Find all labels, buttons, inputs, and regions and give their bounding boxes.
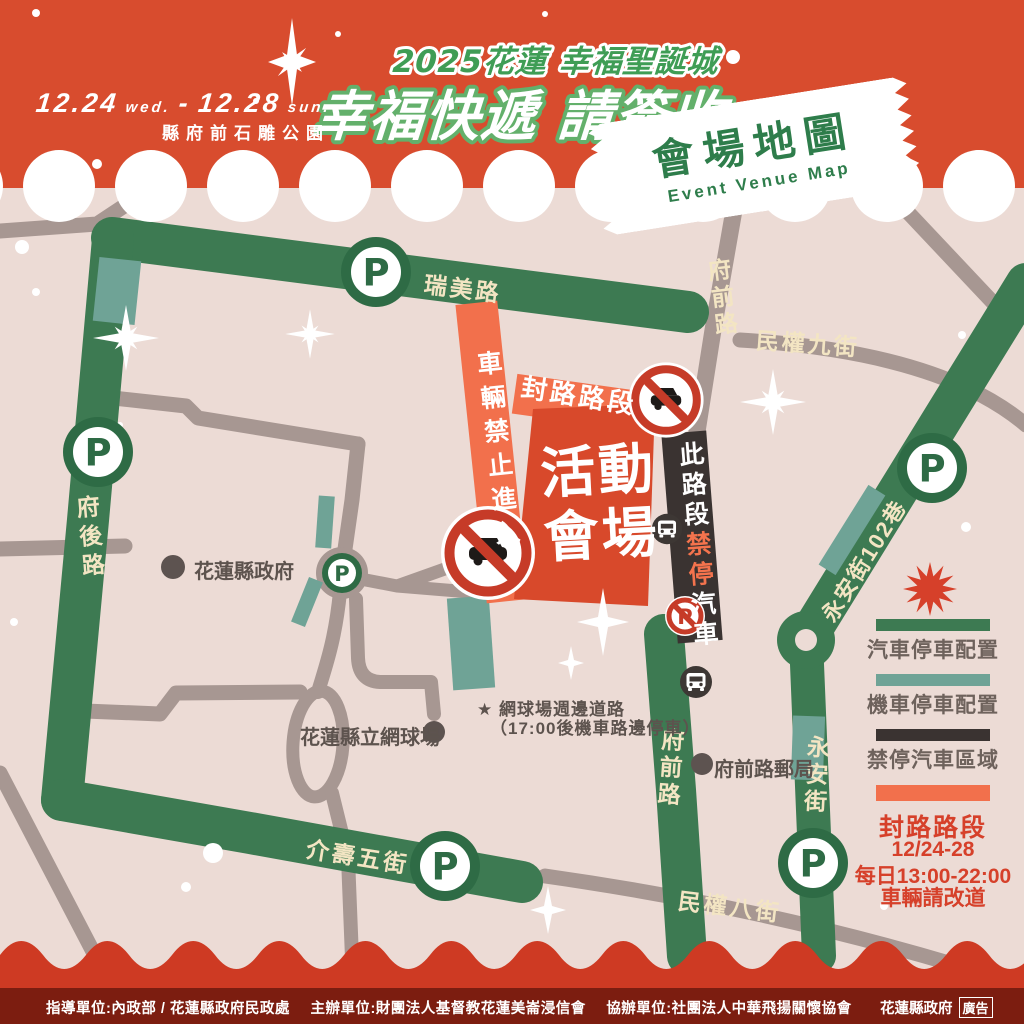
venue-line1: 活動 bbox=[518, 436, 679, 508]
date-separator: - bbox=[177, 88, 192, 118]
credit-coorganizer: 協辦單位:社團法人中華飛揚關懷協會 bbox=[606, 1001, 851, 1017]
no-cars-sign bbox=[628, 362, 703, 437]
date-start: 12.24 bbox=[34, 88, 120, 118]
legend-label-car: 汽車停車配置 bbox=[856, 634, 1010, 664]
event-title: 2025花蓮 幸福聖誕城 bbox=[391, 44, 723, 80]
event-dates: 12.24 wed. - 12.28 sun. bbox=[34, 88, 332, 119]
legend-closure-dates: 12/24-28 bbox=[851, 838, 1015, 862]
svg-text:P: P bbox=[431, 846, 458, 889]
poi-county-government: 花蓮縣政府 bbox=[194, 555, 294, 584]
parking-icon: P bbox=[410, 831, 480, 901]
event-location: 縣府前石雕公園 bbox=[162, 119, 330, 144]
parking-icon: P bbox=[897, 433, 967, 503]
svg-text:P: P bbox=[918, 448, 945, 491]
ad-badge: 廣告 bbox=[959, 997, 993, 1018]
poi-tennis-court: 花蓮縣立網球場 bbox=[300, 721, 440, 750]
parking-icon: P bbox=[63, 417, 133, 487]
legend-label-moto: 機車停車配置 bbox=[856, 689, 1010, 719]
legend-swatch-noparking bbox=[876, 729, 990, 741]
zone-part1: 此路段 bbox=[675, 440, 710, 532]
venue-label: 活動 會場 bbox=[518, 436, 682, 572]
parking-icon: P bbox=[322, 553, 362, 593]
footer-credits: 指導單位:內政部 / 花蓮縣政府民政處 主辦單位:財團法人基督教花蓮美崙浸信會 … bbox=[46, 997, 868, 1018]
road-label-minquan9: 民權九街 bbox=[755, 321, 861, 362]
zone-part3: 汽車 bbox=[687, 590, 720, 652]
parking-icon: P bbox=[778, 828, 848, 898]
date-end-day: sun. bbox=[287, 99, 332, 116]
credit-supervisor: 指導單位:內政部 / 花蓮縣政府民政處 bbox=[46, 1001, 290, 1017]
legend-closure-note: 車輛請改道 bbox=[851, 882, 1015, 912]
venue-line2: 會場 bbox=[521, 500, 682, 572]
road-label-fuqian-south: 府前路 bbox=[649, 727, 689, 810]
svg-text:P: P bbox=[84, 432, 111, 475]
svg-text:P: P bbox=[799, 843, 826, 886]
svg-text:P: P bbox=[334, 562, 349, 586]
parking-icon: P bbox=[341, 237, 411, 307]
date-end: 12.28 bbox=[197, 88, 283, 118]
legend-label-noparking: 禁停汽車區域 bbox=[856, 744, 1010, 774]
poi-post-office: 府前路郵局 bbox=[714, 753, 814, 782]
legend-swatch-closure bbox=[876, 785, 990, 801]
credit-organizer: 主辦單位:財團法人基督教花蓮美崙浸信會 bbox=[310, 1001, 585, 1017]
legend-swatch-moto bbox=[876, 674, 990, 686]
tennis-note-line2: （17:00後機車路邊停車） bbox=[490, 714, 700, 739]
event-map-poster: P P P P P P bbox=[0, 0, 1024, 1024]
svg-text:P: P bbox=[362, 252, 389, 295]
footer-org: 花蓮縣政府 bbox=[880, 997, 953, 1018]
legend-swatch-car bbox=[876, 619, 990, 631]
footer-right: 花蓮縣政府 廣告 bbox=[880, 997, 1012, 1018]
zone-part2: 禁停 bbox=[682, 530, 715, 592]
bus-stop-icon bbox=[680, 666, 712, 698]
date-start-day: wed. bbox=[125, 99, 172, 116]
